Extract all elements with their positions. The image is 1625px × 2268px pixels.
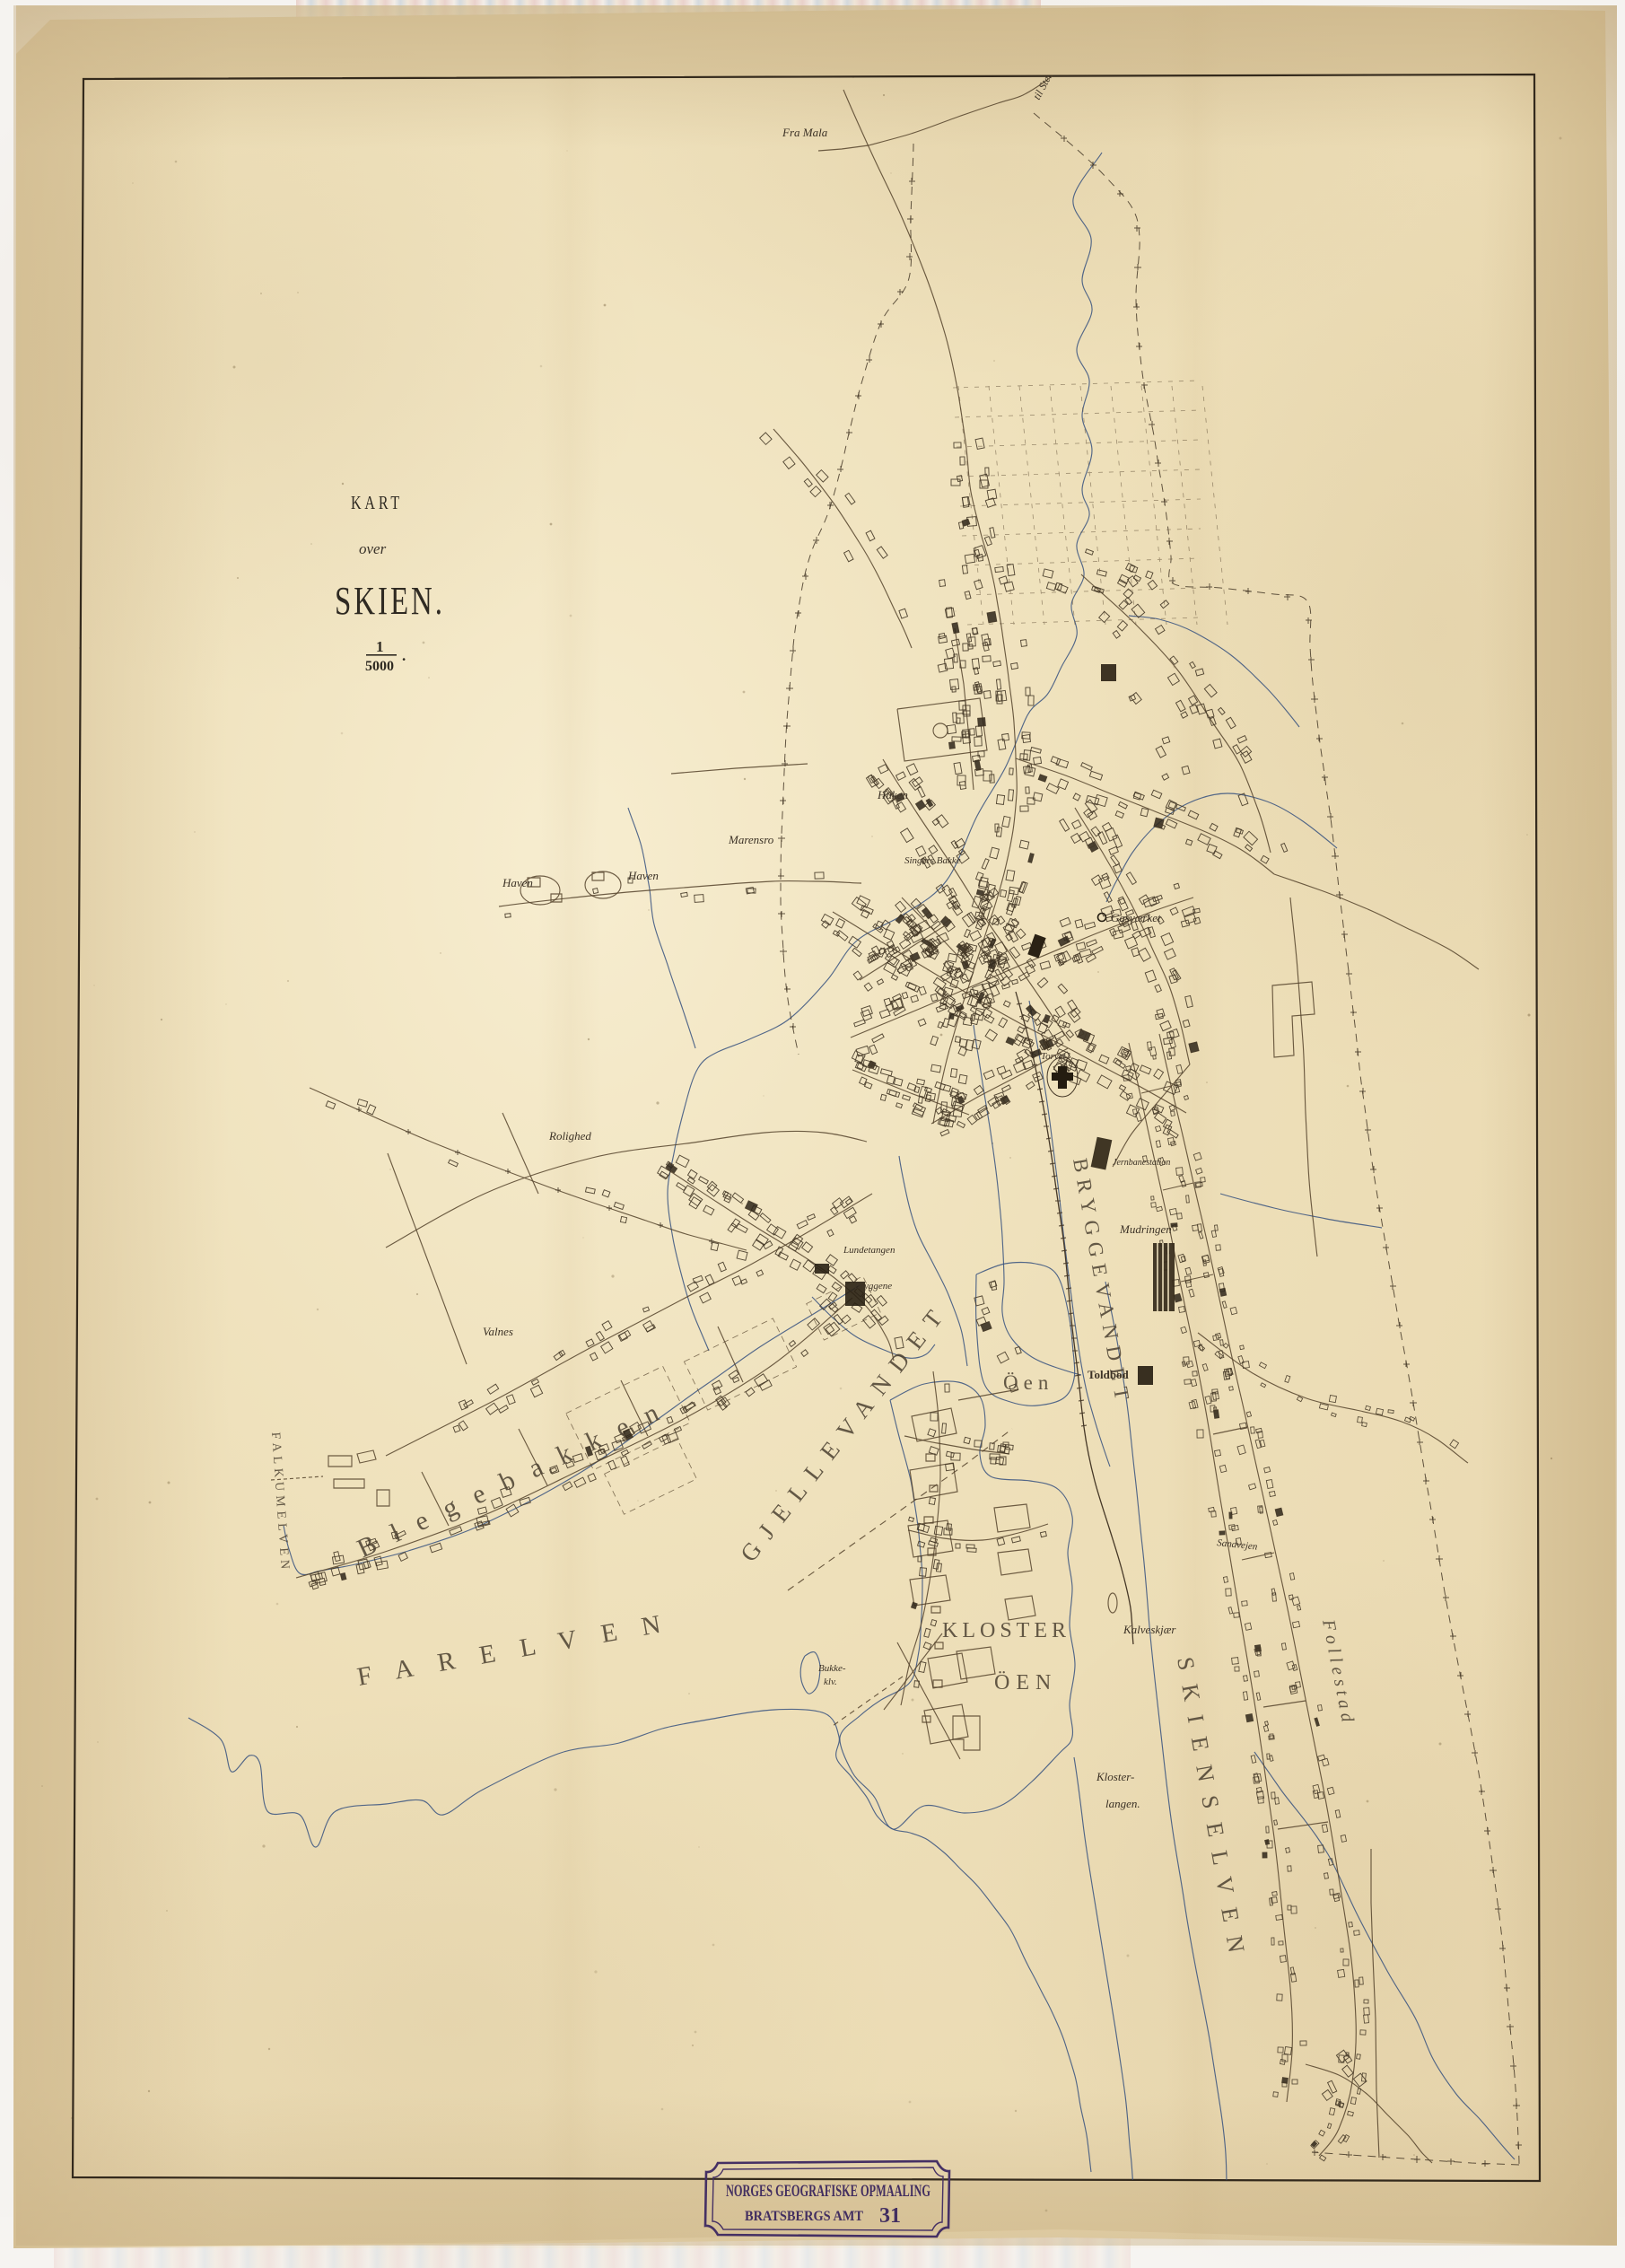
svg-text:Rolighed: Rolighed: [548, 1129, 591, 1143]
svg-text:langen.: langen.: [1105, 1797, 1140, 1810]
svg-text:Lundetangen: Lundetangen: [843, 1245, 895, 1256]
svg-text:SKIEN.: SKIEN.: [335, 579, 445, 623]
svg-text:ÖEN: ÖEN: [994, 1671, 1057, 1694]
svg-text:KART: KART: [351, 492, 403, 513]
svg-text:KLOSTER: KLOSTER: [942, 1619, 1070, 1642]
svg-text:Öen: Öen: [1003, 1371, 1053, 1394]
svg-text:Torvet: Torvet: [1041, 1051, 1067, 1062]
svg-text:Haven: Haven: [627, 869, 659, 882]
svg-text:1: 1: [376, 638, 384, 655]
svg-text:Kalveskjær: Kalveskjær: [1123, 1623, 1176, 1636]
svg-text:NORGES GEOGRAFISKE OPMAALING: NORGES GEOGRAFISKE OPMAALING: [726, 2182, 930, 2201]
svg-text:31: 31: [879, 2204, 901, 2228]
svg-text:Bryggene: Bryggene: [854, 1281, 892, 1292]
svg-text:Marensro: Marensro: [728, 833, 774, 846]
svg-text:Jernbanestation: Jernbanestation: [1113, 1158, 1170, 1168]
svg-text:.: .: [402, 647, 406, 664]
svg-text:5000: 5000: [365, 659, 394, 674]
svg-text:Mudringen: Mudringen: [1119, 1222, 1172, 1236]
svg-text:over: over: [359, 540, 387, 557]
svg-text:Singers Bakke: Singers Bakke: [904, 855, 961, 866]
svg-text:BRATSBERGS AMT: BRATSBERGS AMT: [745, 2209, 863, 2224]
svg-text:klv.: klv.: [824, 1677, 837, 1687]
svg-text:Valnes: Valnes: [483, 1325, 513, 1338]
svg-text:Fra Mala: Fra Mala: [782, 126, 828, 139]
svg-text:Kloster-: Kloster-: [1096, 1770, 1134, 1783]
svg-text:Haven: Haven: [502, 876, 533, 889]
svg-text:Toldbod: Toldbod: [1088, 1368, 1130, 1381]
svg-text:Gasværket: Gasværket: [1111, 911, 1161, 924]
svg-text:Huken: Huken: [877, 788, 908, 801]
svg-text:Bukke-: Bukke-: [818, 1663, 846, 1674]
